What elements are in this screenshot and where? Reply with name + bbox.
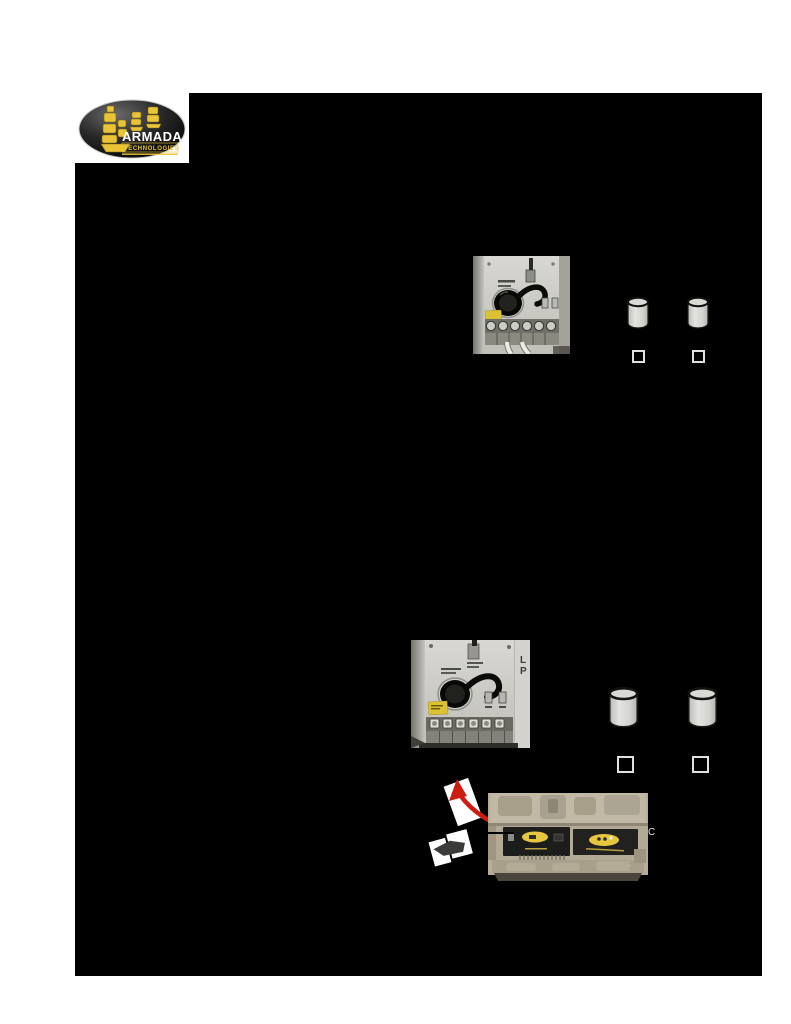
cylinder-icon: [686, 296, 710, 329]
transmitter-device: [503, 827, 570, 856]
checkbox: [692, 350, 705, 363]
cylinder-icon: [686, 686, 719, 728]
blackout-content-panel: [75, 93, 762, 976]
caption-fragment-line2: P: [520, 666, 536, 677]
caption-fragment-line1: L: [520, 655, 536, 666]
caption-fragment-line1: C: [648, 827, 655, 838]
transformer-wiring-photo: [473, 256, 570, 354]
label-patch-with-clip: [428, 829, 474, 866]
caption-fragment: L P: [520, 655, 536, 677]
receiver-device: [573, 829, 638, 855]
checkbox: [632, 350, 645, 363]
tracer-kit-case-photo: [488, 793, 648, 882]
brand-name: ARMADA: [122, 129, 182, 144]
transformer-module-photo: [411, 640, 530, 748]
armada-technologies-logo: ARMADA TECHNOLOGIES: [77, 98, 187, 161]
caption-fragment: C: [648, 827, 655, 838]
checkbox: [692, 756, 709, 773]
brand-subtitle: TECHNOLOGIES: [124, 146, 179, 152]
logo-underline: [122, 154, 178, 155]
leader-line: [488, 832, 514, 834]
cylinder-icon: [626, 296, 650, 329]
document-page: ARMADA TECHNOLOGIES: [0, 0, 791, 1024]
cylinder-icon: [607, 686, 640, 728]
checkbox: [617, 756, 634, 773]
